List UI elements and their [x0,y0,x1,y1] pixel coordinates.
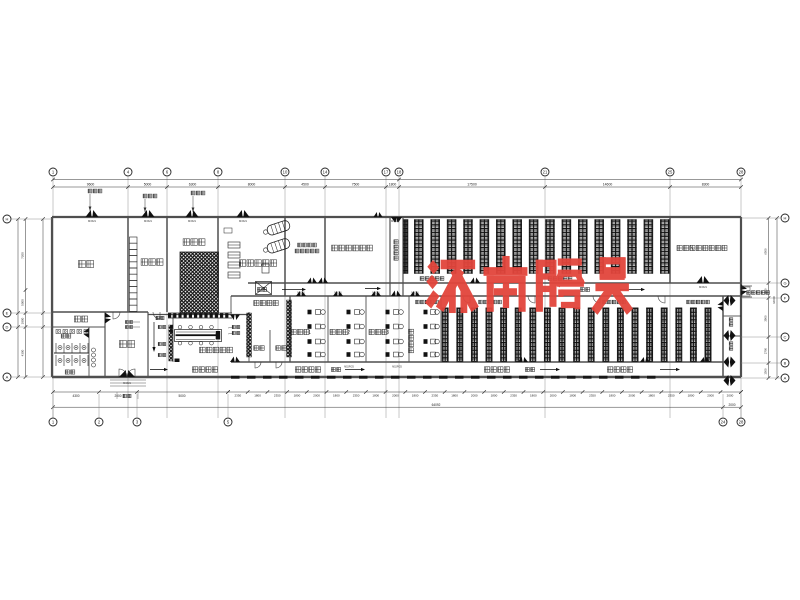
svg-text:2350: 2350 [432,394,439,398]
svg-text:2350: 2350 [353,394,360,398]
svg-text:2000: 2000 [392,394,399,398]
svg-text:1800: 1800 [688,394,695,398]
svg-text:17500: 17500 [467,183,477,187]
svg-text:4500: 4500 [301,183,309,187]
svg-text:16000: 16000 [772,296,776,304]
svg-text:M1021: M1021 [411,291,419,294]
svg-text:9600: 9600 [87,183,95,187]
svg-text:M15P/25: M15P/25 [392,366,402,369]
svg-text:G: G [783,281,786,286]
svg-text:1800: 1800 [609,394,616,398]
svg-text:3900: 3900 [764,315,768,322]
svg-text:M1521: M1521 [699,285,707,289]
svg-text:4300: 4300 [72,394,79,398]
svg-text:1800: 1800 [389,183,397,187]
svg-text:2350: 2350 [668,394,675,398]
svg-text:8000: 8000 [248,183,256,187]
svg-text:18: 18 [397,170,402,175]
svg-text:M15P/25: M15P/25 [344,366,354,369]
svg-text:24: 24 [721,420,726,425]
svg-text:64092: 64092 [432,403,441,407]
svg-text:1800: 1800 [412,394,419,398]
svg-text:H: H [6,217,9,222]
svg-text:2000: 2000 [114,394,121,398]
svg-text:H: H [784,216,787,221]
svg-text:28: 28 [739,170,744,175]
svg-text:M1021: M1021 [372,291,380,294]
svg-text:A: A [784,376,787,381]
svg-text:E: E [6,311,9,316]
svg-text:M1521: M1521 [88,219,96,223]
svg-text:5000: 5000 [144,183,152,187]
svg-text:14: 14 [323,170,328,175]
svg-text:1800: 1800 [569,394,576,398]
svg-text:1800: 1800 [372,394,379,398]
svg-text:2000: 2000 [550,394,557,398]
svg-text:1800: 1800 [530,394,537,398]
svg-text:6500: 6500 [764,248,768,255]
svg-text:1800: 1800 [333,394,340,398]
svg-text:1800: 1800 [254,394,261,398]
svg-text:7500: 7500 [352,183,360,187]
svg-text:3: 3 [386,330,389,336]
svg-text:1500: 1500 [764,368,768,375]
svg-text:2000: 2000 [629,394,636,398]
svg-text:2350: 2350 [510,394,517,398]
svg-text:2000: 2000 [471,394,478,398]
svg-text:1800: 1800 [648,394,655,398]
svg-text:14600: 14600 [603,183,613,187]
svg-text:A: A [6,375,9,380]
svg-text:2350: 2350 [589,394,596,398]
svg-text:28: 28 [739,420,744,425]
svg-text:B: B [784,361,787,366]
svg-text:5000: 5000 [178,394,185,398]
svg-text:2350: 2350 [235,394,242,398]
svg-text:5000: 5000 [21,299,25,306]
svg-text:1800: 1800 [451,394,458,398]
svg-text:M1521: M1521 [391,219,399,223]
svg-text:2000: 2000 [727,394,734,398]
svg-text:2700: 2700 [764,347,768,354]
svg-text:M1521: M1521 [144,219,152,223]
svg-text:17: 17 [384,170,389,175]
svg-text:21: 21 [543,170,548,175]
svg-text:M1521: M1521 [188,219,196,223]
svg-text:2: 2 [347,330,350,336]
svg-text:2000: 2000 [313,394,320,398]
svg-text:2350: 2350 [274,394,281,398]
svg-text:2000: 2000 [728,403,735,407]
svg-text:M1521: M1521 [239,219,247,223]
svg-text:8300: 8300 [702,183,710,187]
svg-text:25: 25 [668,170,673,175]
svg-text:1800: 1800 [491,394,498,398]
svg-text:7200: 7200 [21,252,25,259]
svg-text:10: 10 [283,170,288,175]
svg-text:D: D [6,325,9,330]
svg-text:1: 1 [308,330,311,336]
svg-text:6300: 6300 [189,183,197,187]
svg-text:1500: 1500 [764,288,768,295]
svg-text:C: C [784,335,787,340]
svg-text:1800: 1800 [294,394,301,398]
svg-text:4300: 4300 [21,349,25,356]
svg-text:M1021: M1021 [334,291,342,294]
svg-text:M1021: M1021 [297,291,305,294]
svg-text:2000: 2000 [707,394,714,398]
svg-text:1800: 1800 [21,317,25,324]
